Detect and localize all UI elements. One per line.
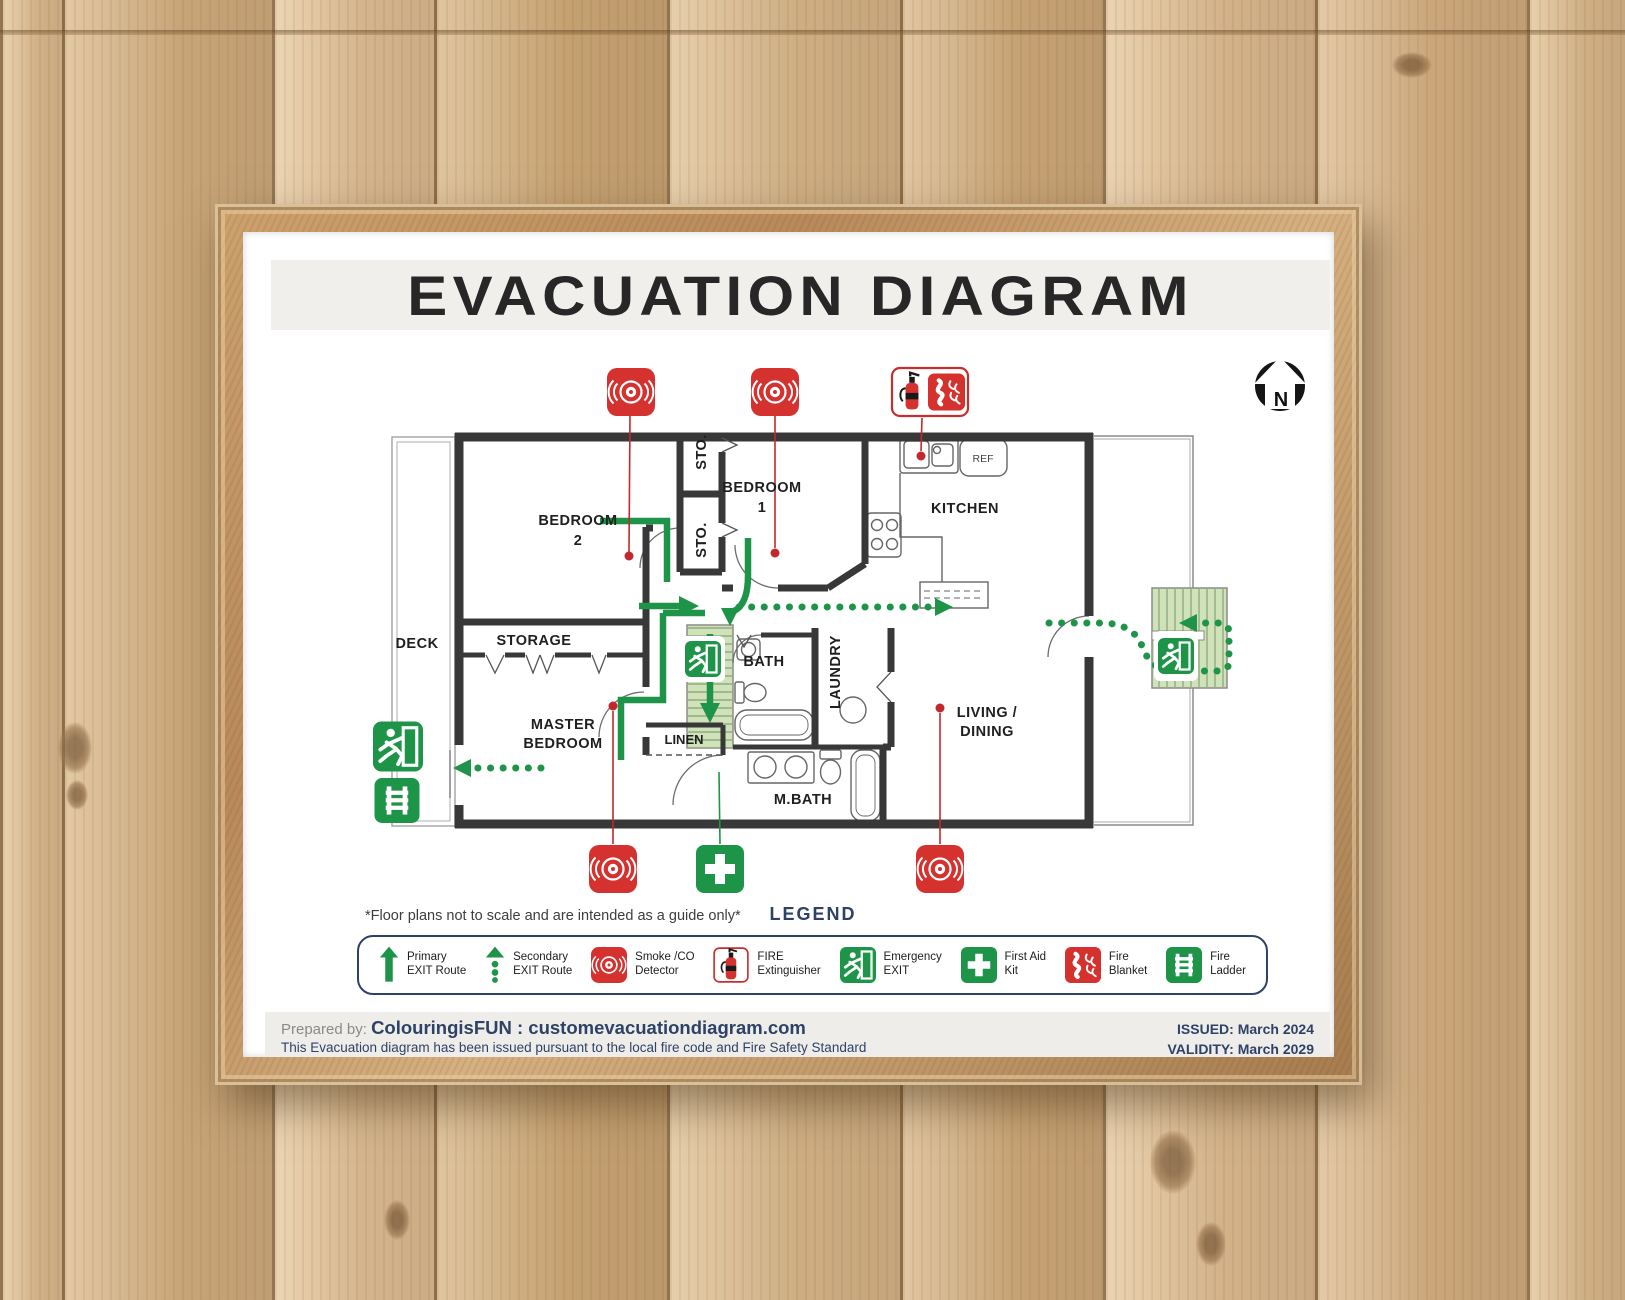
smoke-detector-icon xyxy=(607,368,655,416)
legend-item-first-aid-kit: First AidKit xyxy=(961,947,1047,983)
room-label-master: MASTER xyxy=(531,717,595,733)
exterior-exit-sign-icon xyxy=(1154,631,1198,681)
wood-knot xyxy=(66,780,88,810)
room-label-laundry: LAUNDRY xyxy=(828,635,844,709)
validity-date: VALIDITY: March 2029 xyxy=(1167,1040,1314,1060)
legend-item-fire-ladder: FireLadder xyxy=(1166,947,1246,983)
master-bath-fixtures xyxy=(748,750,880,821)
wood-knot xyxy=(1392,52,1432,78)
evacuation-poster: EVACUATION DIAGRAM xyxy=(243,232,1334,1057)
wood-plank xyxy=(0,0,65,1300)
room-label-master-2: BEDROOM xyxy=(523,736,602,752)
room-label-storage: STORAGE xyxy=(497,633,572,649)
fire-extinguisher-blanket-icon xyxy=(892,368,968,416)
legend-item-emergency-exit: EmergencyEXIT xyxy=(840,947,942,983)
legend-item-secondary-exit-route: SecondaryEXIT Route xyxy=(485,944,572,986)
room-label-living-2: DINING xyxy=(960,724,1014,740)
fire-blanket-icon xyxy=(1065,947,1101,983)
room-label-bath: BATH xyxy=(743,654,784,670)
fire-ladder-icon xyxy=(375,778,420,823)
fire-extinguisher-icon xyxy=(713,947,749,983)
first-aid-kit-icon xyxy=(696,845,744,893)
smoke-detector-icon xyxy=(751,368,799,416)
compliance-note: This Evacuation diagram has been issued … xyxy=(281,1040,866,1055)
primary-route-arrow-icon xyxy=(379,944,399,986)
wood-knot xyxy=(384,1200,410,1240)
legend: PrimaryEXIT Route SecondaryEXIT Route Sm… xyxy=(357,935,1268,995)
room-label-sto-lower: STO. xyxy=(694,522,710,558)
room-label-deck: DECK xyxy=(395,636,438,652)
smoke-detector-icon xyxy=(591,947,627,983)
legend-item-fire-blanket: FireBlanket xyxy=(1065,947,1147,983)
room-label-mbath: M.BATH xyxy=(774,792,832,808)
emergency-exit-sign-icon xyxy=(840,947,876,983)
first-aid-kit-icon xyxy=(961,947,997,983)
room-label-sto-upper: STO. xyxy=(694,434,710,470)
wood-knot xyxy=(1150,1130,1196,1194)
floor-plan: N BEDROOM 2 STO. STO. BEDROOM 1 KITCHEN … xyxy=(243,232,1334,1057)
north-label: N xyxy=(1274,389,1288,411)
legend-item-primary-exit-route: PrimaryEXIT Route xyxy=(379,944,466,986)
smoke-detector-icon xyxy=(916,845,964,893)
room-label-living: LIVING / xyxy=(957,705,1017,721)
room-label-linen: LINEN xyxy=(665,732,704,747)
fire-ladder-icon xyxy=(1166,947,1202,983)
room-label-bedroom1: BEDROOM xyxy=(722,480,801,496)
north-indicator-icon: N xyxy=(1254,357,1306,411)
emergency-exit-sign-icon xyxy=(373,722,423,772)
prepared-by: Prepared by: ColouringisFUN : customevac… xyxy=(281,1017,866,1039)
wood-plank xyxy=(1527,0,1625,1300)
room-label-bedroom2-number: 2 xyxy=(574,533,583,549)
room-label-bedroom1-number: 1 xyxy=(758,500,767,516)
picture-frame: EVACUATION DIAGRAM xyxy=(215,204,1362,1085)
legend-item-fire-extinguisher: FIREExtinguisher xyxy=(713,947,820,983)
room-label-bedroom2: BEDROOM xyxy=(538,513,617,529)
smoke-detector-icon xyxy=(589,845,637,893)
wood-knot xyxy=(58,722,92,774)
label-ref: REF xyxy=(973,453,994,465)
room-label-kitchen: KITCHEN xyxy=(931,501,999,517)
legend-item-smoke-co-detector: Smoke /CODetector xyxy=(591,947,694,983)
secondary-route-arrow-icon xyxy=(485,944,505,986)
issued-date: ISSUED: March 2024 xyxy=(1167,1020,1314,1040)
stairwell-exit-sign-icon xyxy=(681,636,725,682)
brand-name: ColouringisFUN : customevacuationdiagram… xyxy=(371,1017,806,1038)
wood-knot xyxy=(1196,1222,1226,1266)
legend-title: LEGEND xyxy=(683,904,943,925)
footer-strip: Prepared by: ColouringisFUN : customevac… xyxy=(265,1012,1330,1057)
wood-seam xyxy=(0,30,1625,35)
